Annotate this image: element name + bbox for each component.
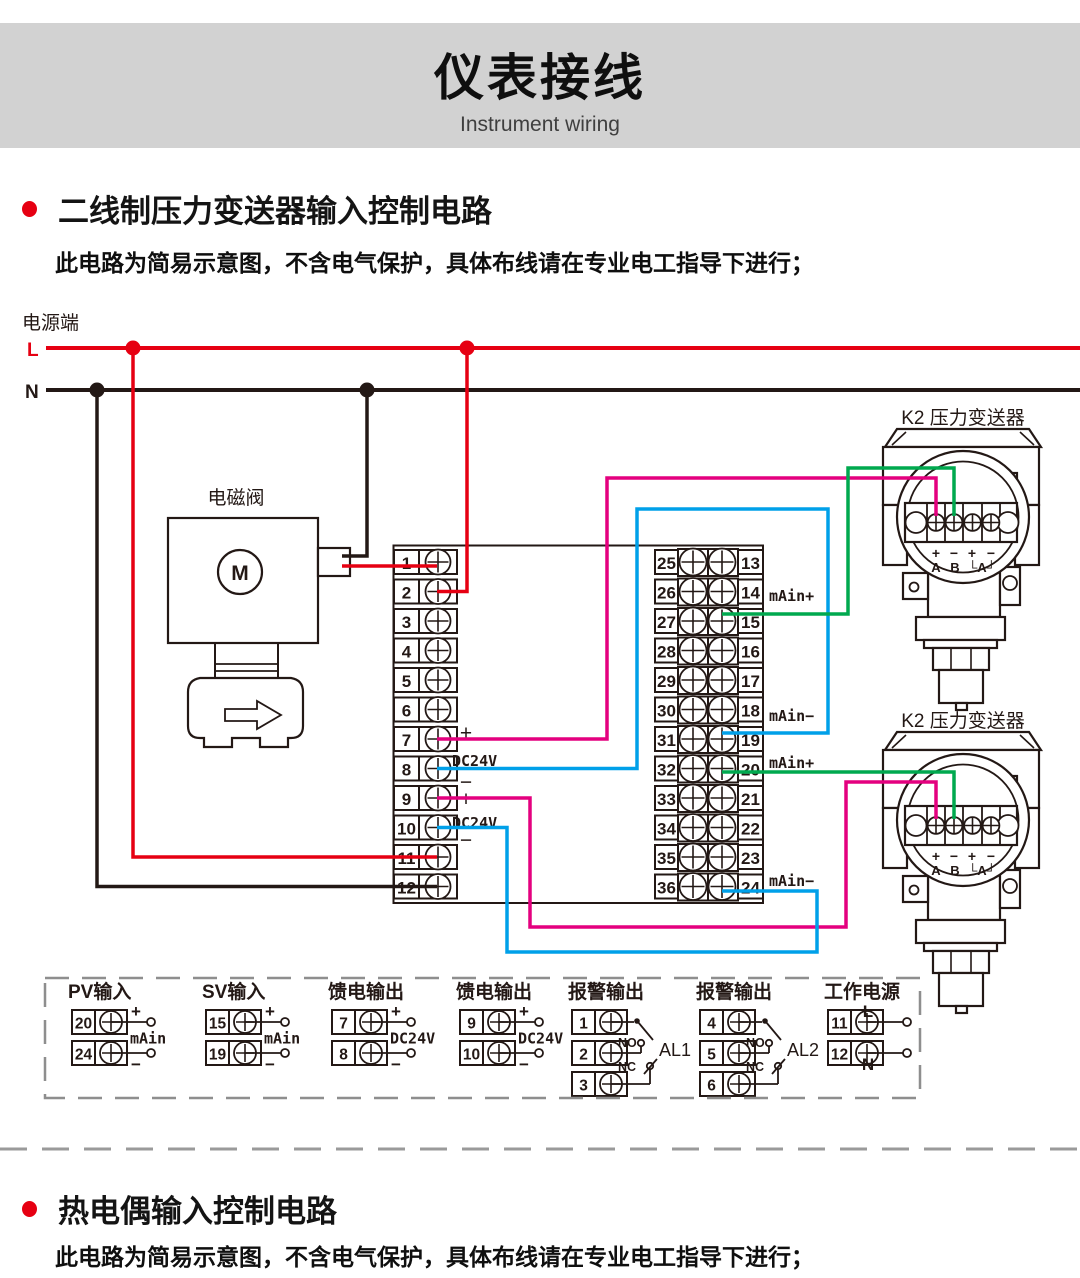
io-group-label: 报警输出 [696, 980, 772, 1003]
main-signal-label: mAin− [769, 872, 814, 890]
terminal-number: 5 [707, 1047, 716, 1064]
terminal-number: 8 [339, 1047, 348, 1064]
wires [97, 348, 954, 952]
switch-arm [766, 1022, 781, 1040]
terminal-row: 2513 [655, 549, 763, 577]
terminal-number: 34 [657, 820, 676, 839]
main-signal-label: mAin+ [769, 754, 814, 772]
power-rails: 电源端 L N [22, 312, 1080, 403]
pressure-transmitter-1 [883, 407, 1041, 710]
main-signal-label: mAin+ [769, 587, 814, 605]
alarm-name-label: AL1 [659, 1040, 691, 1060]
nc-label: NC [746, 1060, 764, 1074]
wire-end-circle-icon [903, 1018, 911, 1026]
io-group-label: 工作电源 [824, 980, 900, 1003]
terminal-number: 23 [741, 849, 760, 868]
terminal-number: 1 [579, 1016, 588, 1033]
terminal-number: 30 [657, 702, 676, 721]
dc24v-label: + [460, 722, 472, 745]
io-group: 工作电源1112LN [824, 980, 911, 1074]
terminal-number: 25 [657, 554, 676, 573]
terminal-number: 14 [741, 584, 760, 603]
terminal-number: 36 [657, 879, 676, 898]
polarity-label: − [519, 1055, 529, 1074]
terminal-row: 3220 [655, 755, 763, 783]
terminal-number: 3 [402, 613, 411, 632]
terminal-number: 16 [741, 643, 760, 662]
terminal-number: 15 [209, 1016, 227, 1033]
terminal-number: 8 [402, 761, 411, 780]
polarity-label: − [265, 1055, 275, 1074]
terminal-number: 21 [741, 790, 760, 809]
terminal-row: 3624 [655, 873, 763, 901]
polarity-label: + [131, 1002, 141, 1021]
io-type-label: mAin [264, 1030, 300, 1048]
section-title-2: 热电偶输入控制电路 [22, 1186, 337, 1231]
terminal-number: 7 [339, 1016, 348, 1033]
polarity-label: + [265, 1002, 275, 1021]
red-bullet-icon [22, 1201, 37, 1217]
section-note-2: 此电路为简易示意图，不含电气保护，具体布线请在专业电工指导下进行； [55, 1238, 814, 1272]
wire-end-circle-icon [903, 1049, 911, 1057]
terminal-row: 3018 [655, 696, 763, 724]
terminal-number: 24 [741, 879, 760, 898]
terminal-number: 9 [467, 1016, 476, 1033]
terminal-number: 4 [707, 1016, 716, 1033]
io-group-label: PV输入 [68, 980, 131, 1003]
line-n-label: N [25, 382, 39, 403]
polarity-label: L [863, 1002, 873, 1021]
dc24v-label: DC24V [452, 814, 497, 832]
terminal-number: 20 [741, 761, 760, 780]
wire-n-to-solenoid [342, 389, 367, 556]
solenoid-connector [318, 548, 350, 576]
terminal-row: 2816 [655, 637, 763, 665]
io-group-label: SV输入 [202, 980, 265, 1003]
polarity-label: + [391, 1002, 401, 1021]
terminal-number: 15 [741, 613, 760, 632]
wire-end-circle-icon [407, 1049, 415, 1057]
wire-end-circle-icon [535, 1018, 543, 1026]
terminal-number: 9 [402, 790, 411, 809]
io-group: 馈电输出78+−DC24V [328, 980, 435, 1074]
io-type-label: mAin [130, 1030, 166, 1048]
io-type-label: DC24V [518, 1030, 563, 1048]
pressure-transmitter-2 [883, 710, 1041, 1013]
wire-end-circle-icon [407, 1018, 415, 1026]
left-terminal-strip: 123456789101112 [394, 550, 457, 900]
terminal-number: 33 [657, 790, 676, 809]
wire-end-circle-icon [281, 1018, 289, 1026]
wire-end-circle-icon [281, 1049, 289, 1057]
terminal-row: 2715 [655, 608, 763, 636]
terminal-row: 3422 [655, 814, 763, 842]
dc24v-label: − [460, 829, 472, 852]
wire-end-circle-icon [147, 1018, 155, 1026]
alarm-name-label: AL2 [787, 1040, 819, 1060]
io-group: 报警输出456NONCAL2 [696, 980, 819, 1096]
terminal-number: 22 [741, 820, 760, 839]
terminal-number: 2 [579, 1047, 588, 1064]
io-group-label: 报警输出 [568, 980, 644, 1003]
terminal-number: 17 [741, 672, 760, 691]
terminal-number: 4 [402, 643, 412, 662]
terminal-number: 7 [402, 731, 411, 750]
terminal-number: 35 [657, 849, 676, 868]
io-group-label: 馈电输出 [456, 980, 532, 1003]
terminal-number: 26 [657, 584, 676, 603]
terminal-number: 6 [707, 1078, 716, 1095]
polarity-label: − [391, 1055, 401, 1074]
wiring-diagram: K2 压力变送器 [0, 0, 1080, 1278]
io-group: SV输入1519+−mAin [202, 980, 300, 1074]
terminal-row: 3321 [655, 785, 763, 813]
terminal-number: 11 [831, 1016, 848, 1033]
terminal-number: 13 [741, 554, 760, 573]
power-terminal-label: 电源端 [22, 312, 79, 334]
terminal-row: 4 [394, 638, 457, 663]
io-group: 报警输出123NONCAL1 [568, 980, 691, 1096]
terminal-number: 29 [657, 672, 676, 691]
main-signal-label: mAin− [769, 707, 814, 725]
terminal-number: 1 [402, 554, 411, 573]
terminal-number: 6 [402, 702, 411, 721]
terminal-row: 6 [394, 697, 457, 722]
io-group-label: 馈电输出 [328, 980, 404, 1003]
wire-8-to-main1 [437, 509, 828, 769]
wire-end-circle-icon [535, 1049, 543, 1057]
motor-label: M [231, 562, 249, 585]
terminal-row: 3523 [655, 844, 763, 872]
io-group: PV输入2024+−mAin [68, 980, 166, 1074]
terminal-number: 5 [402, 672, 411, 691]
terminal-number: 2 [402, 584, 411, 603]
polarity-label: + [519, 1002, 529, 1021]
io-type-label: DC24V [390, 1030, 435, 1048]
terminal-number: 32 [657, 761, 676, 780]
terminal-row: 3 [394, 609, 457, 634]
switch-arm [638, 1022, 653, 1040]
io-group: 馈电输出910+−DC24V [456, 980, 563, 1074]
polarity-label: N [862, 1055, 874, 1074]
terminal-number: 10 [463, 1047, 480, 1064]
terminal-row: 5 [394, 668, 457, 693]
section-title-2-text: 热电偶输入控制电路 [58, 1186, 337, 1231]
middle-terminal-strip: 2513261427152816291730183119322033213422… [655, 549, 763, 901]
terminal-number: 28 [657, 643, 676, 662]
terminal-number: 31 [657, 731, 676, 750]
solenoid-label: 电磁阀 [207, 487, 264, 509]
no-label: NO [746, 1036, 765, 1050]
no-label: NO [618, 1036, 637, 1050]
terminal-number: 3 [579, 1078, 588, 1095]
terminal-number: 24 [75, 1047, 93, 1064]
terminal-row: 3119 [655, 726, 763, 754]
nc-label: NC [618, 1060, 636, 1074]
line-l-label: L [27, 340, 39, 361]
terminal-row: 2614 [655, 578, 763, 606]
polarity-label: − [131, 1055, 141, 1074]
terminal-number: 12 [831, 1047, 848, 1064]
terminal-number: 19 [209, 1047, 227, 1064]
terminal-number: 27 [657, 613, 676, 632]
terminal-number: 18 [741, 702, 760, 721]
terminal-row: 1 [394, 550, 457, 575]
terminal-number: 20 [75, 1016, 92, 1033]
wire-end-circle-icon [147, 1049, 155, 1057]
terminal-number: 10 [397, 820, 416, 839]
terminal-row: 2917 [655, 667, 763, 695]
solenoid-valve: 电磁阀 M [168, 487, 350, 747]
